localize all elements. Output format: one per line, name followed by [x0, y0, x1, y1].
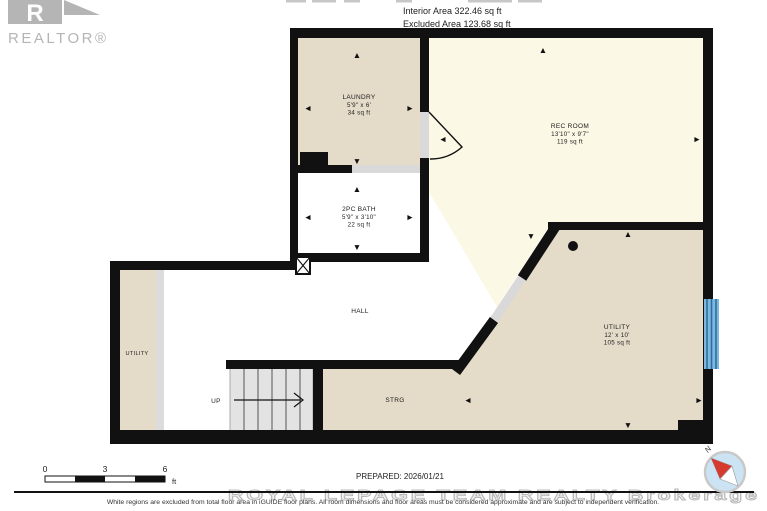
rec-arrow-right-icon: ►	[693, 134, 701, 144]
laundry-area: 34 sq ft	[348, 110, 371, 117]
laundry-dims: 5'9" x 6'	[347, 102, 371, 109]
floor-plan-page: R REALTOR® Interior Area 322.46 sq ft Ex…	[0, 0, 767, 511]
clipped-text-remnant	[286, 0, 542, 3]
room-fills	[120, 38, 705, 432]
wall-laundry-step	[300, 152, 328, 172]
utility-area: 105 sq ft	[604, 340, 630, 347]
floor-plan-canvas: R REALTOR® Interior Area 322.46 sq ft Ex…	[0, 0, 767, 511]
wall-bottom	[110, 430, 713, 444]
bath-arrow-left-icon: ◄	[304, 212, 312, 222]
realtor-wordmark: REALTOR®	[8, 30, 109, 47]
rec-arrow-up-icon: ▲	[539, 45, 547, 55]
wall-laundry-right-upper	[420, 28, 429, 112]
prepared-date: PREPARED: 2026/01/21	[356, 472, 444, 481]
utility-arrow-up-icon: ▲	[624, 229, 632, 239]
scale-tick-0: 0	[43, 464, 48, 474]
utility-name: UTILITY	[604, 324, 631, 331]
laundry-arrow-right-icon: ►	[406, 103, 414, 113]
storage-name: STRG	[385, 397, 404, 404]
laundry-name: LAUNDRY	[342, 94, 375, 101]
wall-bath-right	[420, 165, 429, 261]
wall-left	[110, 261, 120, 444]
rec-arrow-left-icon: ◄	[439, 134, 447, 144]
bath-dims: 5'9" x 3'10"	[342, 214, 376, 221]
window	[704, 299, 719, 369]
rec-arrow-down-icon: ▼	[527, 231, 535, 241]
rec-room-dims: 13'10" x 9'7"	[551, 131, 589, 138]
wall-left-wing-top	[110, 261, 298, 270]
utility-arrow-down-icon: ▼	[624, 420, 632, 430]
bath-area: 22 sq ft	[348, 222, 371, 229]
wall-top	[290, 28, 713, 38]
storage-arrow-left-icon: ◄	[464, 395, 472, 405]
wall-stairs-right	[313, 360, 323, 432]
wall-right	[703, 28, 713, 444]
scale-unit: ft	[172, 477, 177, 486]
column-dot	[568, 241, 578, 251]
bath-name: 2PC BATH	[342, 206, 376, 213]
wall-laundry-bath-left	[290, 28, 298, 270]
bath-arrow-up-icon: ▲	[353, 184, 361, 194]
scale-bar: 0 3 6 ft	[43, 464, 177, 486]
excluded-area-text: Excluded Area 123.68 sq ft	[403, 19, 511, 29]
bath-arrow-down-icon: ▼	[353, 242, 361, 252]
footer-rule	[14, 491, 754, 493]
realtor-logo: R REALTOR®	[8, 0, 109, 47]
hall-name: HALL	[351, 308, 369, 315]
rec-room-area: 119 sq ft	[557, 139, 583, 146]
utility-arrow-right-icon: ►	[695, 395, 703, 405]
scale-tick-6: 6	[163, 464, 168, 474]
wall-storage-top	[226, 360, 462, 369]
disclaimer-text: White regions are excluded from total fl…	[107, 499, 659, 506]
utility-left-divider	[156, 270, 164, 432]
compass-north-label: N	[703, 444, 714, 454]
wall-bottom-right-step	[678, 420, 713, 432]
bath-arrow-right-icon: ►	[406, 212, 414, 222]
stairs-up-label: UP	[211, 398, 221, 405]
stairs	[230, 368, 313, 432]
utility-dims: 12' x 10'	[604, 332, 629, 339]
realtor-logo-roof	[64, 0, 100, 15]
compass-icon: N	[703, 444, 745, 492]
laundry-arrow-left-icon: ◄	[304, 103, 312, 113]
realtor-logo-r: R	[26, 0, 43, 27]
laundry-arrow-down-icon: ▼	[353, 156, 361, 166]
door-laundry-bath	[352, 165, 420, 173]
utility-left-name: UTILITY	[126, 351, 149, 357]
laundry-arrow-up-icon: ▲	[353, 50, 361, 60]
scale-tick-3: 3	[103, 464, 108, 474]
rec-room-name: REC ROOM	[551, 123, 589, 130]
door-laundry-rec	[420, 112, 429, 158]
interior-area-text: Interior Area 322.46 sq ft	[403, 6, 502, 16]
duct-x-box	[296, 257, 310, 274]
